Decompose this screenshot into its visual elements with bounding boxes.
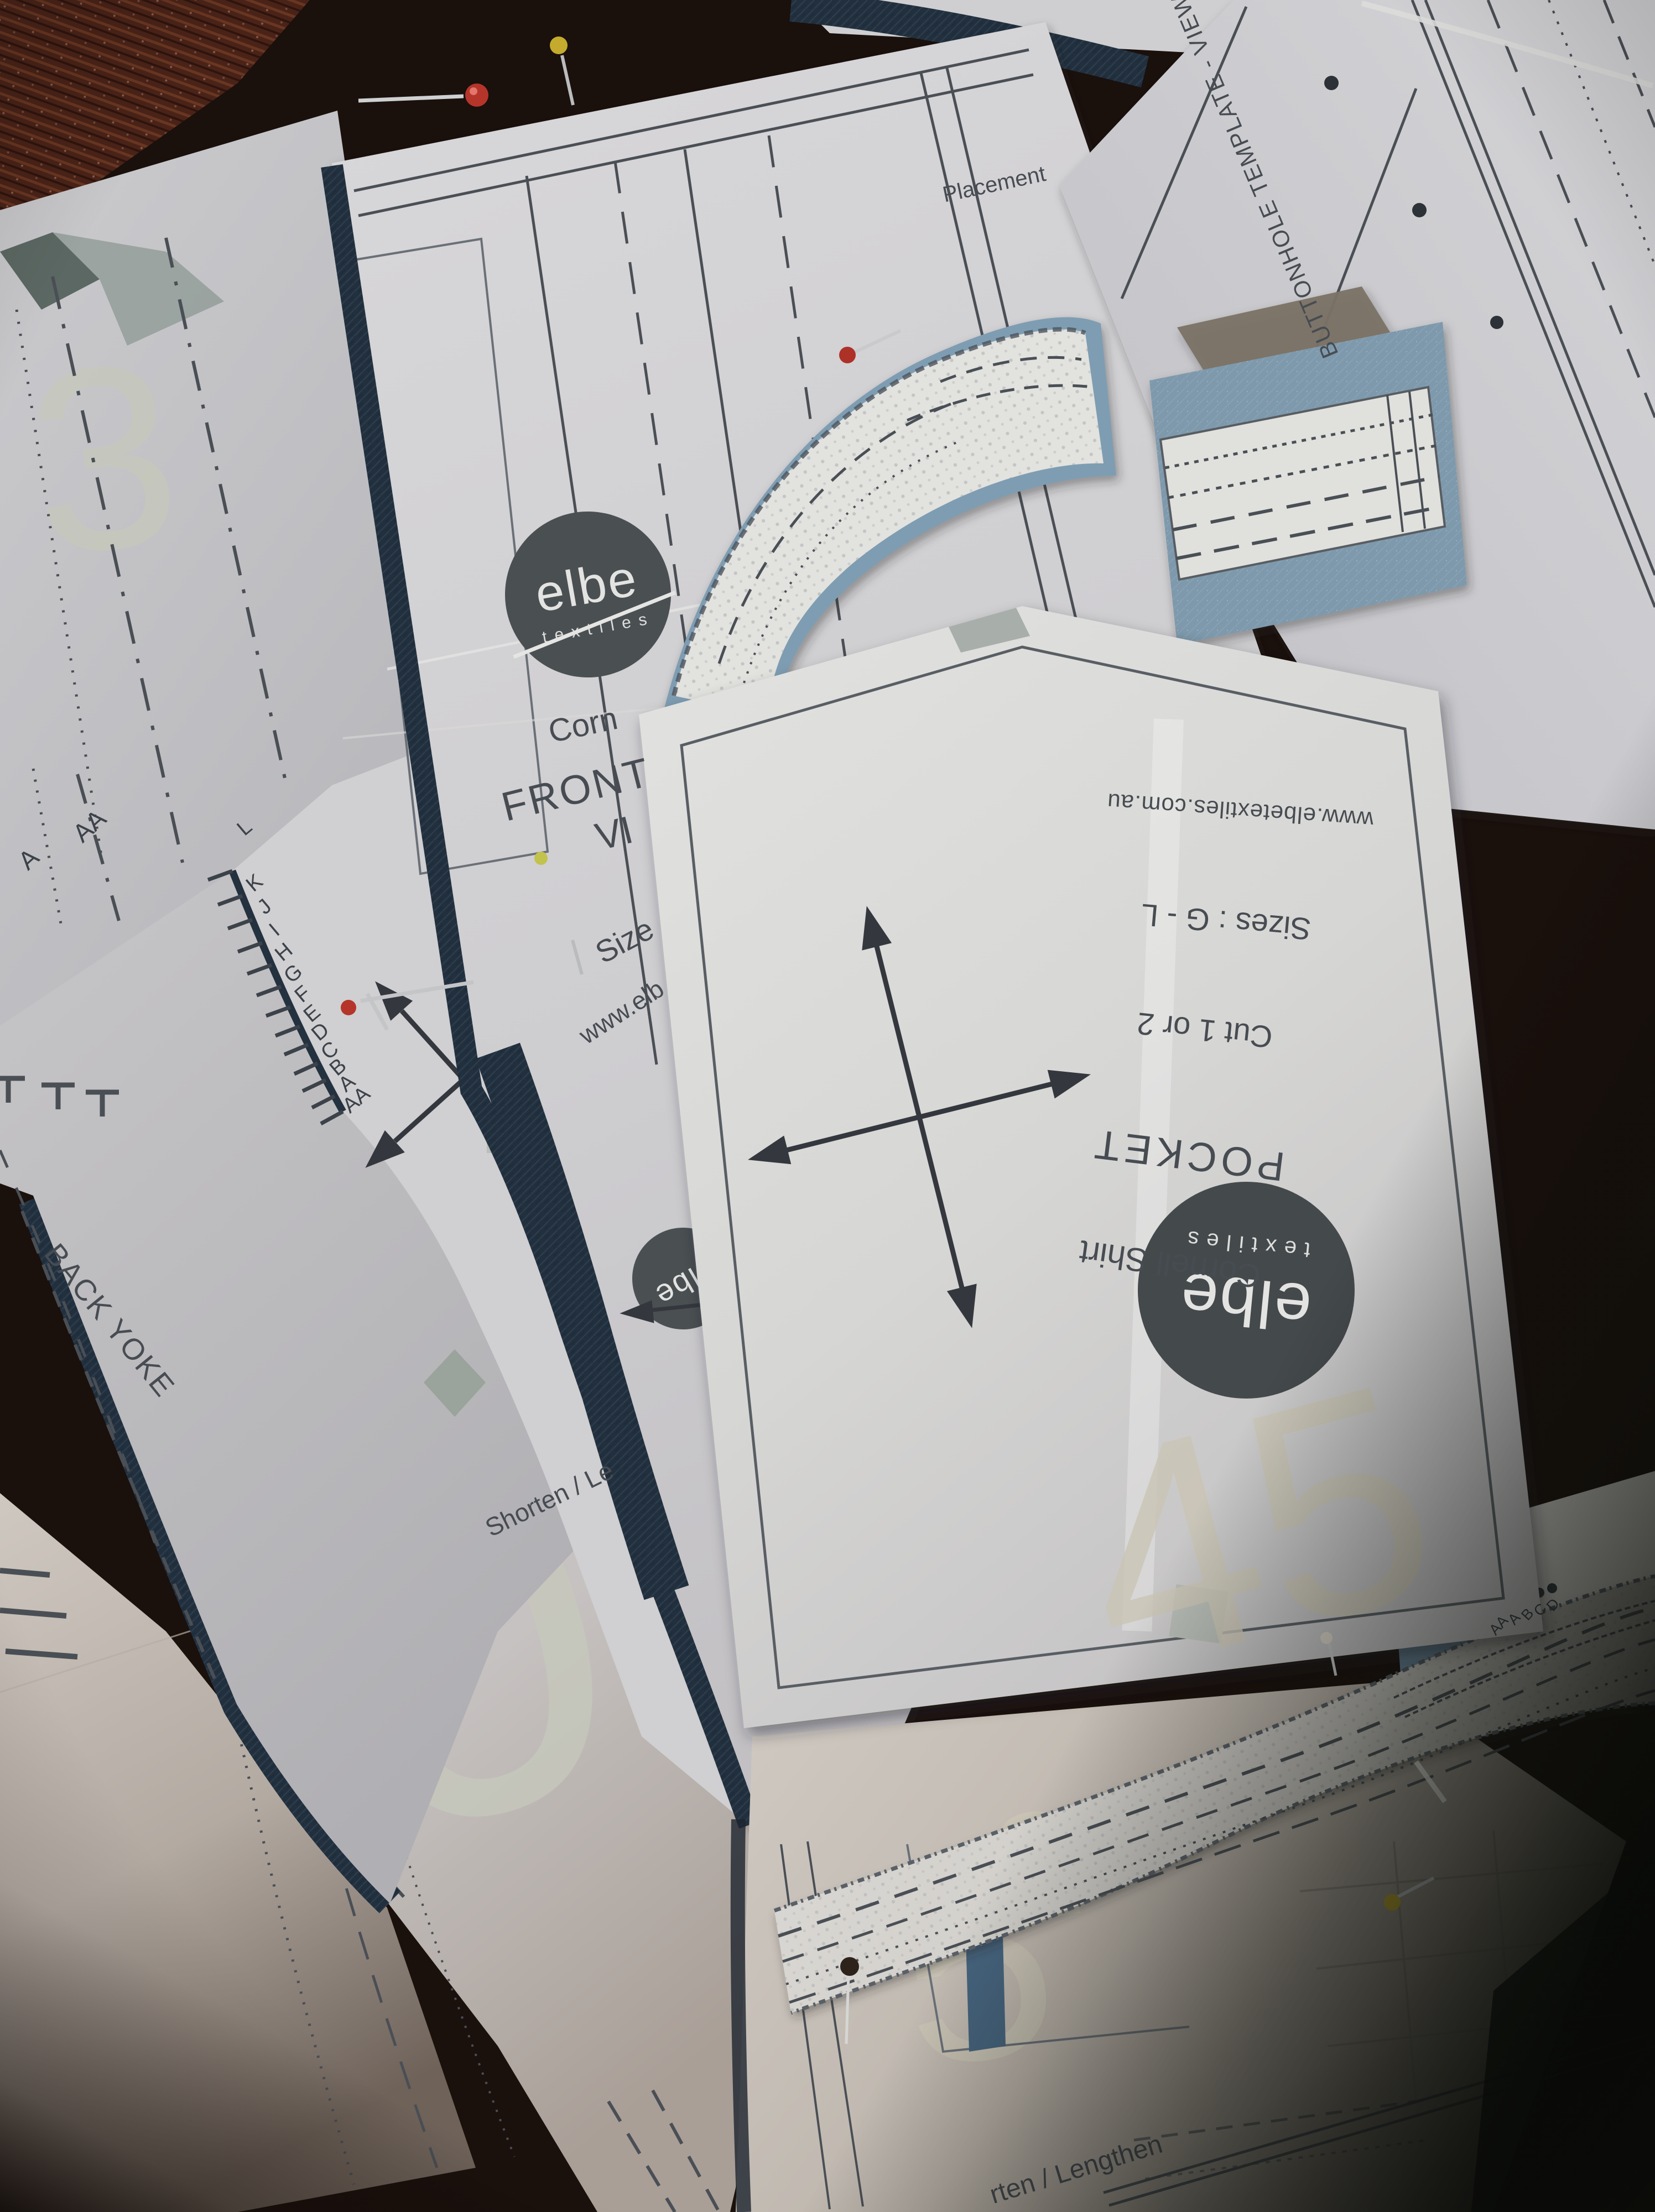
vignette xyxy=(0,0,1655,2212)
photo-sewing-pattern-scene: 20 3 xyxy=(0,0,1655,2212)
scene-canvas: 20 3 xyxy=(0,0,1655,2212)
